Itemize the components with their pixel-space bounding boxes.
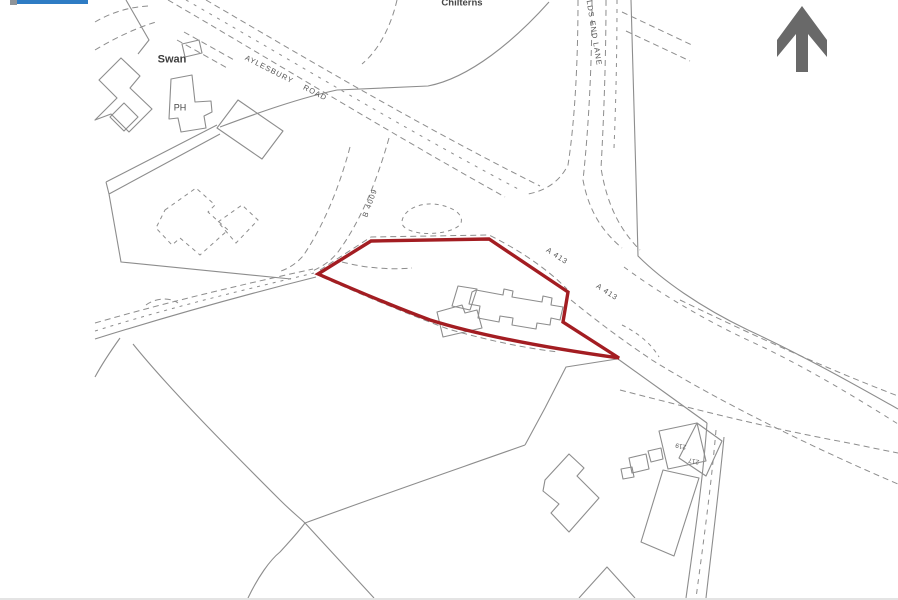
house-number-219: 219 <box>675 441 687 449</box>
site-plan-screenshot: Swan PH Chilterns AYLESBURY ROAD B 4009 … <box>0 0 898 600</box>
label-chilterns: Chilterns <box>441 0 482 8</box>
label-swan: Swan <box>158 55 187 66</box>
site-plan-drawing <box>0 0 898 598</box>
house-number-217: 217 <box>688 456 700 464</box>
map-solid-lines <box>95 0 898 598</box>
site-buildings <box>437 286 563 337</box>
site-boundary-redline <box>318 239 619 358</box>
house-outlines <box>621 423 722 556</box>
north-arrow-icon <box>777 6 827 72</box>
map-dashed-roads <box>95 0 898 598</box>
label-ph: PH <box>174 104 187 113</box>
